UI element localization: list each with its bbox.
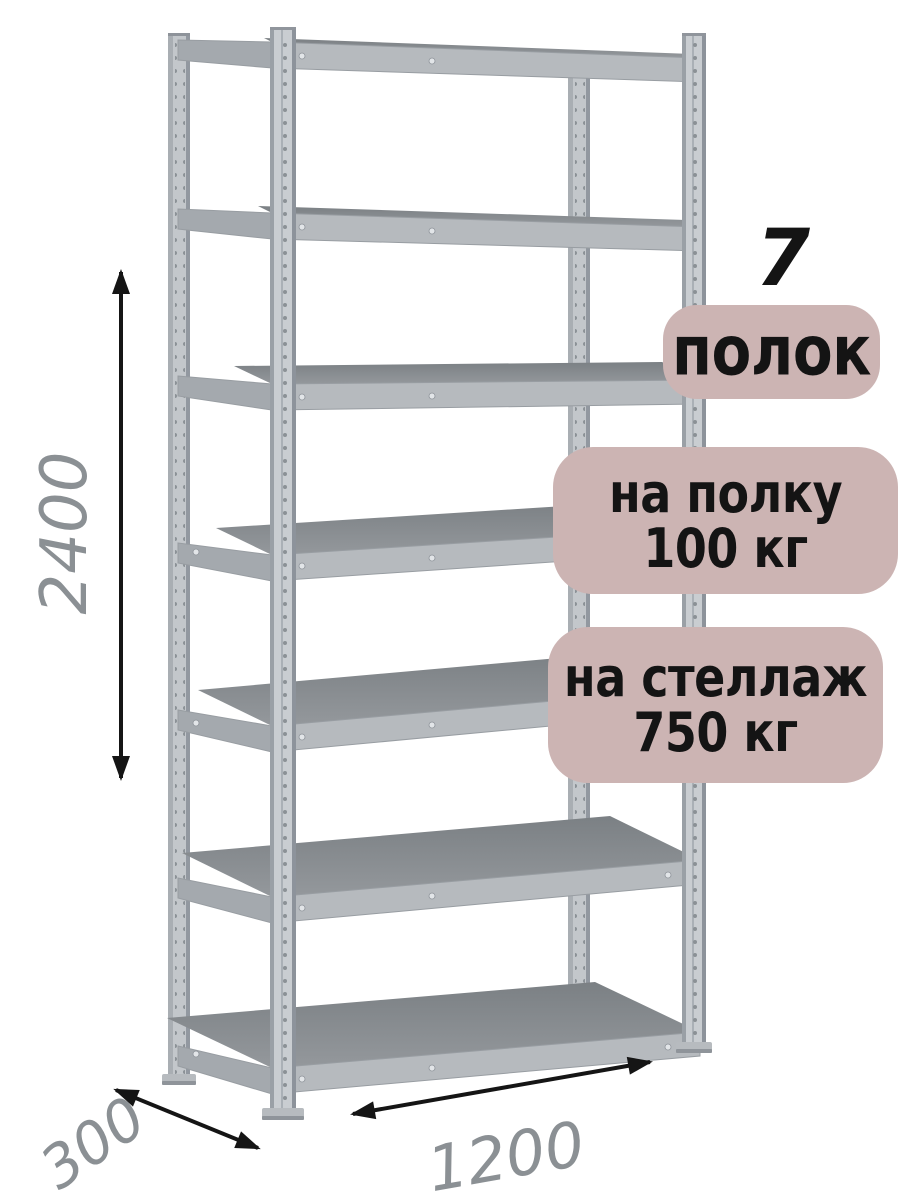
shelf-count-label: полок	[672, 317, 871, 387]
per-shelf-load-line1: на полку	[609, 465, 842, 520]
shelf-count-number: 7	[733, 220, 833, 298]
shelf-count-badge: полок	[663, 305, 880, 399]
depth-dimension: 300	[28, 1083, 258, 1200]
height-dimension-label: 2400	[28, 452, 102, 615]
per-rack-load-line2: 750 кг	[633, 705, 797, 760]
shelf-6	[178, 816, 700, 923]
per-rack-load-badge: на стеллаж 750 кг	[548, 627, 883, 783]
product-image: 2400 300 1200 7 полок на полку 100 кг на…	[0, 0, 900, 1200]
per-shelf-load-badge: на полку 100 кг	[553, 447, 898, 594]
shelf-1	[178, 38, 700, 82]
per-shelf-load-line2: 100 кг	[643, 520, 807, 575]
width-dimension-label: 1200	[422, 1107, 590, 1200]
shelf-3	[178, 362, 700, 410]
shelf-2	[178, 206, 700, 251]
rack-illustration: 2400 300 1200	[0, 0, 900, 1200]
per-rack-load-line1: на стеллаж	[564, 650, 867, 705]
shelf-7	[167, 982, 700, 1094]
height-dimension: 2400	[28, 272, 121, 778]
front-left-post	[270, 27, 296, 1118]
